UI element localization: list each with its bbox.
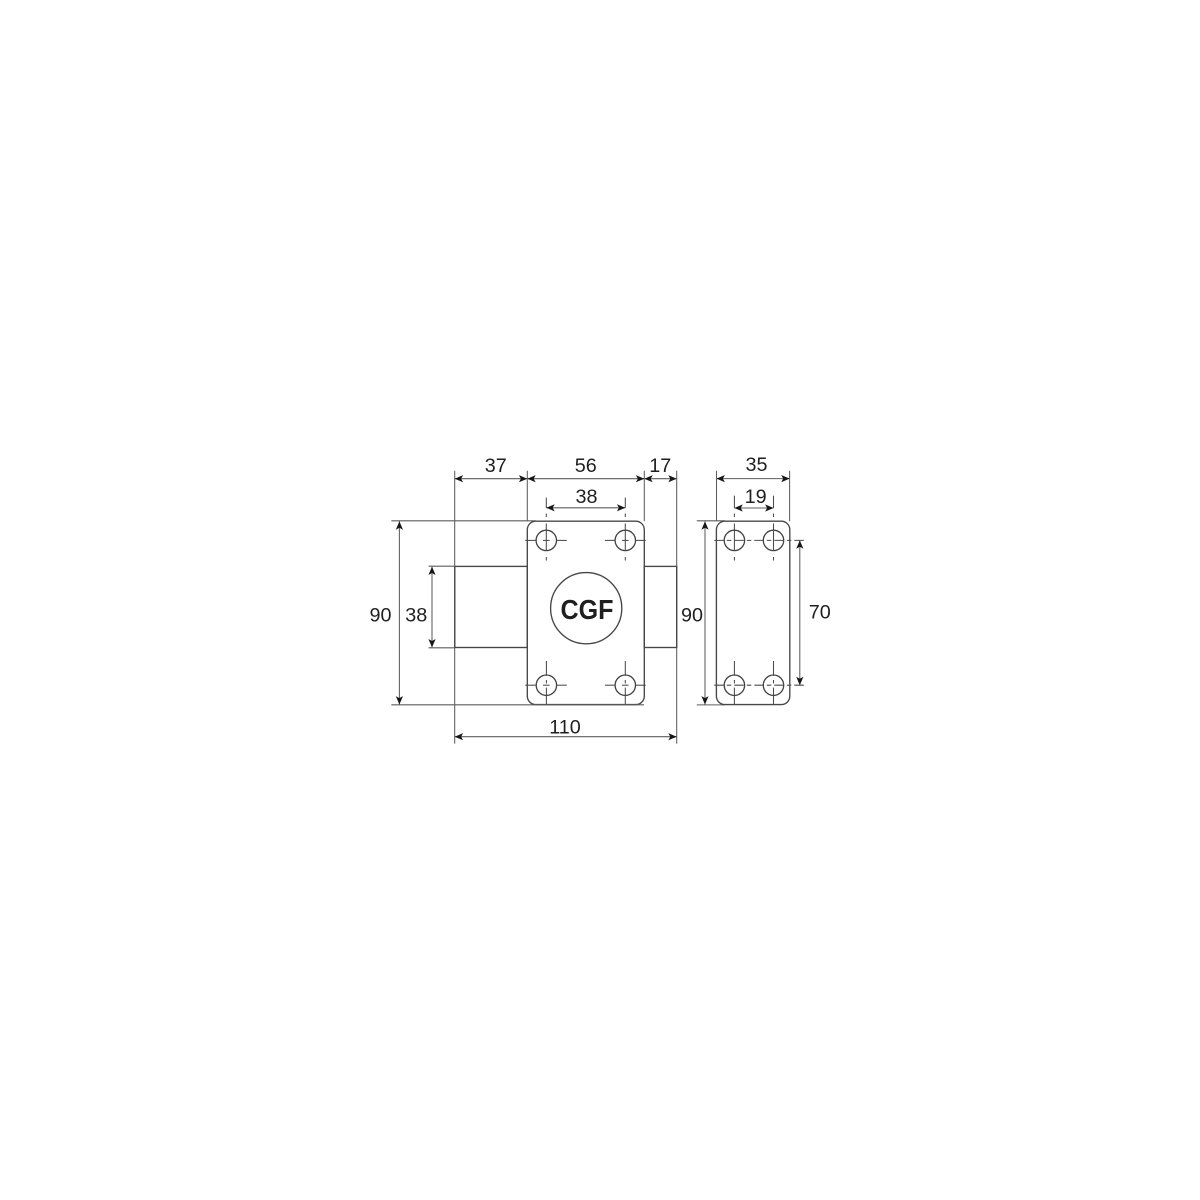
- svg-text:19: 19: [745, 486, 767, 508]
- svg-text:56: 56: [575, 455, 597, 477]
- svg-text:110: 110: [549, 716, 581, 738]
- svg-text:70: 70: [809, 602, 831, 624]
- svg-text:CGF: CGF: [561, 594, 614, 625]
- svg-text:38: 38: [575, 486, 597, 508]
- svg-text:35: 35: [745, 454, 767, 476]
- svg-text:90: 90: [369, 604, 391, 626]
- svg-text:38: 38: [405, 604, 427, 626]
- svg-text:37: 37: [485, 455, 507, 477]
- svg-text:90: 90: [681, 604, 703, 626]
- svg-text:17: 17: [649, 455, 671, 477]
